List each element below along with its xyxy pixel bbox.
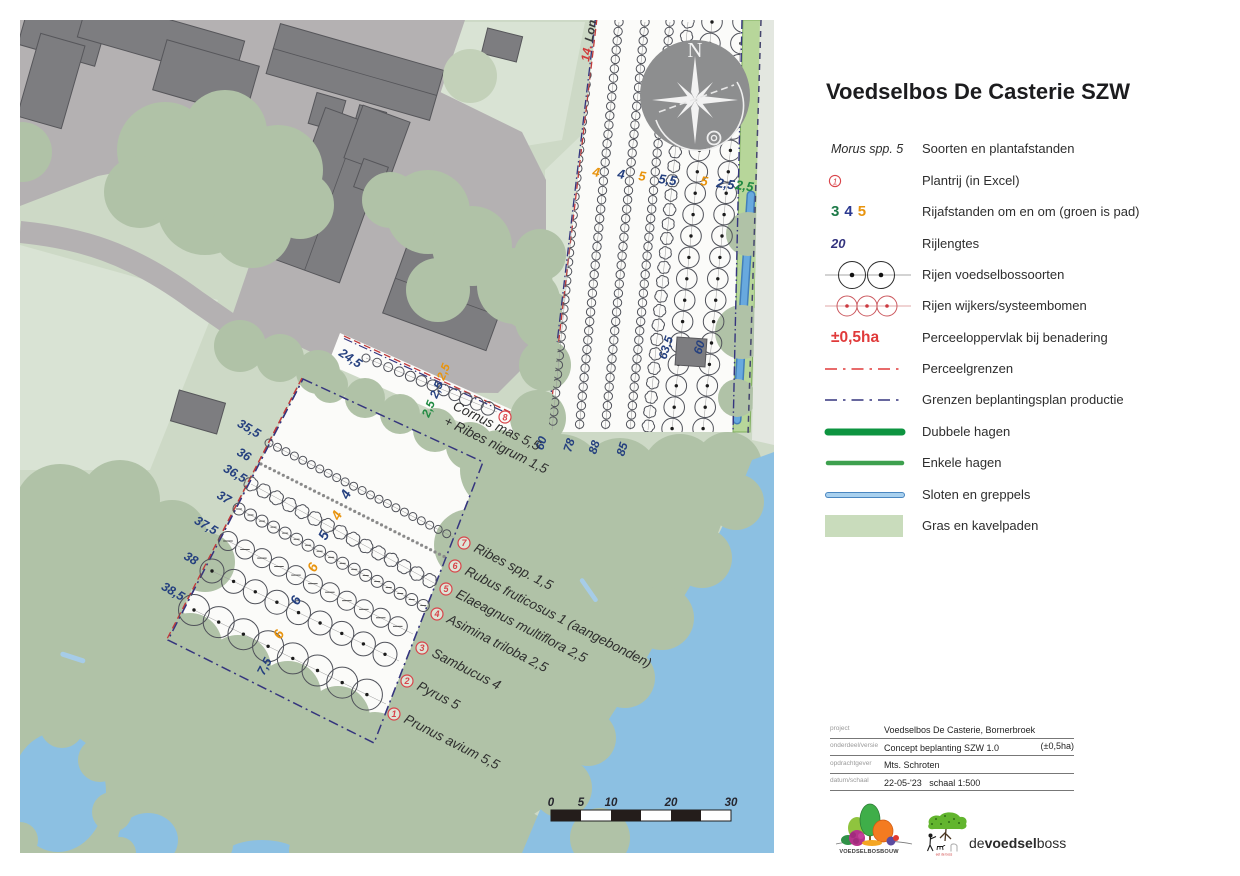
svg-text:1: 1 — [391, 709, 396, 719]
svg-text:4: 4 — [433, 609, 439, 619]
svg-text:2: 2 — [403, 676, 409, 686]
svg-text:eet de boss: eet de boss — [936, 853, 953, 857]
svg-text:5,5: 5,5 — [658, 171, 679, 188]
svg-text:10: 10 — [605, 797, 618, 809]
svg-text:VOEDSELBOSBOUW: VOEDSELBOSBOUW — [839, 849, 899, 855]
svg-text:2,5: 2,5 — [715, 175, 737, 193]
svg-text:devoedselboss: devoedselboss — [969, 835, 1066, 851]
svg-text:N: N — [687, 38, 702, 62]
svg-text:1: 1 — [833, 176, 838, 186]
svg-text:2,5: 2,5 — [734, 177, 756, 195]
svg-text:5: 5 — [578, 797, 585, 809]
svg-text:30: 30 — [725, 797, 738, 809]
svg-text:3: 3 — [419, 643, 424, 653]
svg-text:0: 0 — [548, 797, 555, 809]
svg-text:20: 20 — [664, 797, 678, 809]
